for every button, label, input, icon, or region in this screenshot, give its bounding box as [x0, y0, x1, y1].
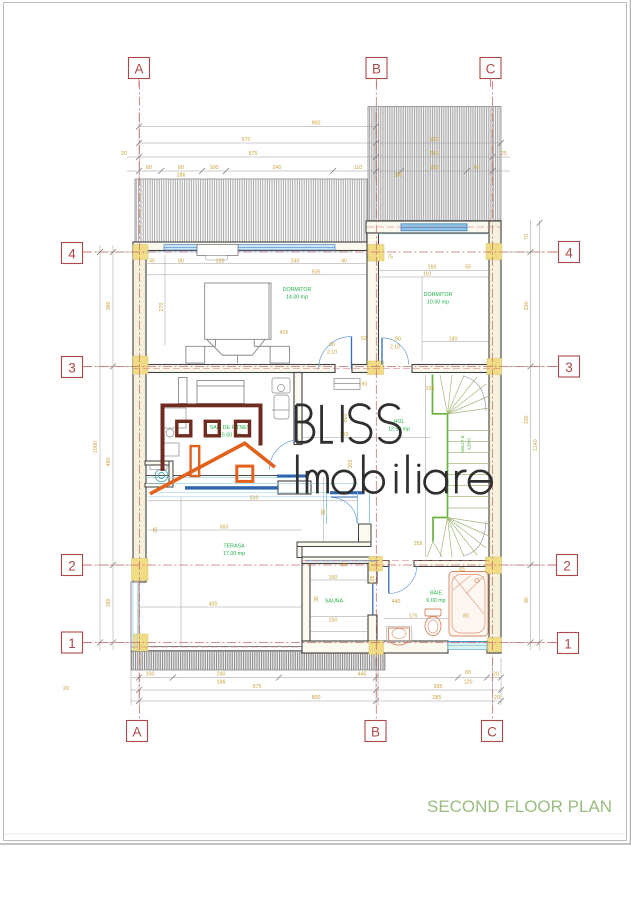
svg-text:20: 20	[63, 686, 69, 692]
svg-text:80: 80	[463, 613, 469, 619]
svg-text:x28.0: x28.0	[467, 438, 473, 450]
svg-text:1: 1	[564, 637, 572, 652]
svg-text:270: 270	[159, 303, 165, 312]
svg-text:4: 4	[68, 247, 76, 262]
svg-text:180: 180	[449, 336, 458, 342]
svg-text:DORMITOR: DORMITOR	[424, 292, 453, 298]
svg-text:60: 60	[474, 165, 480, 171]
svg-text:120: 120	[464, 680, 473, 686]
svg-text:510: 510	[250, 495, 259, 501]
svg-text:70: 70	[524, 234, 530, 240]
svg-text:400: 400	[209, 602, 218, 608]
svg-text:575: 575	[249, 151, 258, 157]
svg-text:80: 80	[146, 165, 152, 171]
svg-text:90: 90	[329, 342, 335, 348]
svg-text:25: 25	[153, 527, 159, 533]
svg-text:SAUNA: SAUNA	[325, 599, 344, 605]
svg-text:1: 1	[68, 636, 76, 651]
svg-text:100: 100	[216, 258, 225, 264]
svg-text:2: 2	[563, 559, 571, 574]
svg-text:445: 445	[358, 672, 367, 678]
svg-text:150: 150	[329, 575, 338, 581]
svg-text:BAIE: BAIE	[430, 591, 443, 597]
svg-text:75: 75	[387, 255, 393, 261]
svg-text:570: 570	[242, 137, 251, 143]
svg-text:560: 560	[220, 525, 229, 531]
svg-text:90: 90	[524, 597, 530, 603]
svg-text:A: A	[132, 725, 141, 740]
svg-text:80: 80	[341, 563, 347, 569]
svg-text:25: 25	[501, 151, 507, 157]
svg-text:SECOND FLOOR PLAN: SECOND FLOOR PLAN	[427, 797, 612, 816]
svg-text:80: 80	[321, 509, 327, 515]
svg-text:B: B	[372, 62, 381, 77]
svg-text:DORMITOR: DORMITOR	[283, 287, 312, 293]
svg-text:240: 240	[291, 258, 300, 264]
svg-text:2: 2	[68, 559, 76, 574]
svg-text:150: 150	[329, 618, 338, 624]
svg-text:6.00 mp: 6.00 mp	[426, 598, 445, 604]
svg-text:80: 80	[178, 165, 184, 171]
svg-text:45: 45	[149, 258, 155, 264]
svg-text:B: B	[371, 725, 380, 740]
svg-text:40: 40	[341, 258, 347, 264]
svg-text:230: 230	[524, 302, 530, 311]
svg-text:14.00 mp: 14.00 mp	[286, 295, 308, 301]
svg-text:1000: 1000	[93, 441, 99, 453]
svg-text:595: 595	[434, 684, 443, 690]
svg-text:160: 160	[428, 265, 437, 271]
svg-text:415: 415	[280, 330, 289, 336]
svg-text:505: 505	[312, 270, 321, 276]
svg-text:130: 130	[430, 137, 439, 143]
svg-text:240: 240	[217, 672, 226, 678]
svg-text:1140: 1140	[533, 439, 539, 450]
svg-text:20: 20	[121, 151, 127, 157]
svg-text:360: 360	[106, 302, 112, 311]
svg-text:186: 186	[217, 680, 226, 686]
svg-text:800: 800	[312, 695, 321, 701]
svg-text:560: 560	[343, 414, 349, 423]
svg-text:2.10: 2.10	[390, 345, 400, 351]
svg-text:10.50 mp: 10.50 mp	[427, 300, 449, 306]
svg-text:160: 160	[359, 382, 368, 388]
svg-text:285: 285	[433, 695, 442, 701]
svg-text:575: 575	[253, 684, 262, 690]
svg-text:18x17.5: 18x17.5	[460, 435, 466, 452]
svg-text:C: C	[486, 62, 496, 77]
svg-text:100: 100	[210, 165, 219, 171]
svg-text:110: 110	[423, 272, 431, 278]
svg-text:55: 55	[465, 265, 471, 271]
svg-text:440: 440	[392, 599, 401, 605]
svg-text:SAL. DE FITNES: SAL. DE FITNES	[210, 425, 251, 431]
svg-text:65: 65	[459, 567, 465, 573]
svg-text:3: 3	[565, 360, 573, 375]
svg-text:186: 186	[394, 173, 403, 179]
svg-text:155: 155	[430, 165, 439, 171]
svg-text:105: 105	[370, 576, 376, 585]
svg-text:240: 240	[273, 165, 282, 171]
svg-text:3: 3	[68, 361, 76, 376]
svg-text:20: 20	[493, 672, 499, 678]
svg-text:20: 20	[494, 695, 500, 701]
svg-text:160: 160	[106, 599, 112, 608]
svg-text:C: C	[487, 725, 497, 740]
svg-text:305: 305	[348, 460, 354, 469]
svg-text:175: 175	[409, 613, 418, 619]
svg-text:900: 900	[312, 121, 321, 127]
svg-text:52: 52	[361, 336, 367, 342]
svg-text:TERASA: TERASA	[223, 544, 245, 550]
svg-text:100: 100	[524, 416, 530, 425]
svg-text:80: 80	[465, 670, 471, 676]
svg-text:80: 80	[178, 258, 184, 264]
svg-text:186: 186	[177, 173, 186, 179]
svg-text:155: 155	[414, 541, 423, 547]
svg-text:4: 4	[565, 246, 573, 261]
svg-text:A: A	[134, 62, 143, 77]
svg-text:2.10: 2.10	[327, 350, 337, 356]
svg-text:35: 35	[314, 596, 320, 602]
svg-text:17.00 mp: 17.00 mp	[223, 551, 245, 557]
svg-text:80: 80	[395, 337, 401, 343]
svg-text:100: 100	[146, 672, 155, 678]
svg-text:460: 460	[106, 458, 112, 467]
svg-text:155: 155	[426, 386, 435, 392]
svg-text:110: 110	[354, 165, 362, 171]
svg-text:265: 265	[430, 151, 439, 157]
